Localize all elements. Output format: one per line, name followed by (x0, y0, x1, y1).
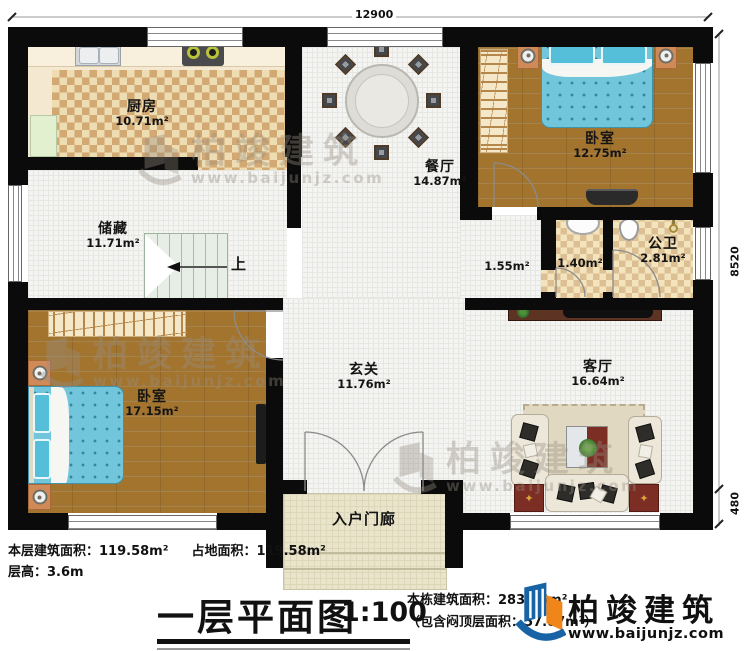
room-label-corridor: 1.55m² (484, 260, 529, 273)
room-label-foyer: 玄关 11.76m² (337, 363, 390, 391)
room-label-porch: 入户门廊 (332, 512, 396, 527)
door-arc (364, 432, 423, 491)
door-arc (234, 311, 283, 360)
stairs-up-label: 上 (231, 257, 247, 272)
room-label-bedroom-tr: 卧室 12.75m² (573, 132, 626, 160)
room-label-living: 客厅 16.64m² (571, 360, 624, 388)
door-arc (556, 268, 585, 297)
room-label-kitchen: 厨房 10.71m² (115, 100, 168, 128)
room-label-dining: 餐厅 14.87m² (413, 160, 466, 188)
door-swing-and-dimension-overlay (0, 0, 750, 651)
door-arc (305, 432, 364, 491)
dimension-top: 12900 (352, 8, 396, 21)
dimension-right: 8520 (729, 237, 742, 287)
room-label-bedroom-bl: 卧室 17.15m² (125, 390, 178, 418)
dimension-porch: 480 (729, 483, 742, 525)
room-label-bathroom: 公卫 2.81m² (640, 237, 685, 265)
room-label-storage: 储藏 11.71m² (86, 222, 139, 250)
door-arc (494, 163, 538, 207)
room-label-wash-area: 1.40m² (557, 257, 602, 270)
brand-logo-icon (512, 580, 566, 644)
